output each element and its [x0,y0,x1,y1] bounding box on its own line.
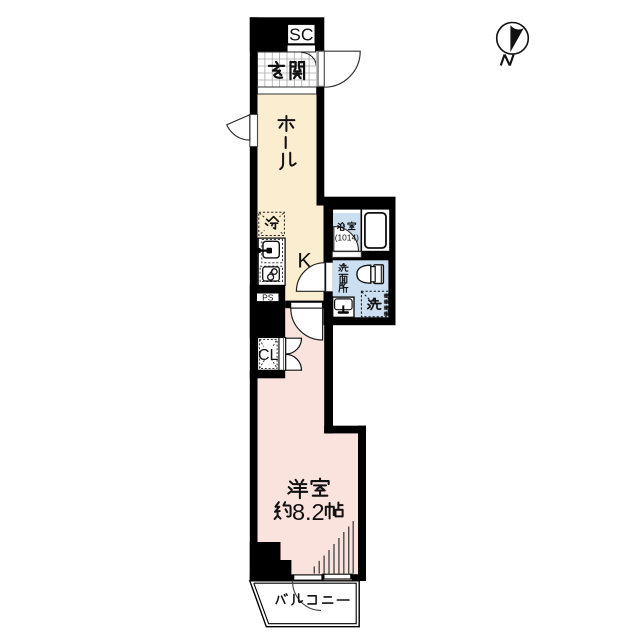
svg-text:PS: PS [262,292,274,302]
svg-text:SC: SC [289,25,313,45]
svg-text:(1014): (1014) [335,232,359,242]
svg-text:CL: CL [258,347,279,364]
svg-text:8.2: 8.2 [292,499,325,525]
